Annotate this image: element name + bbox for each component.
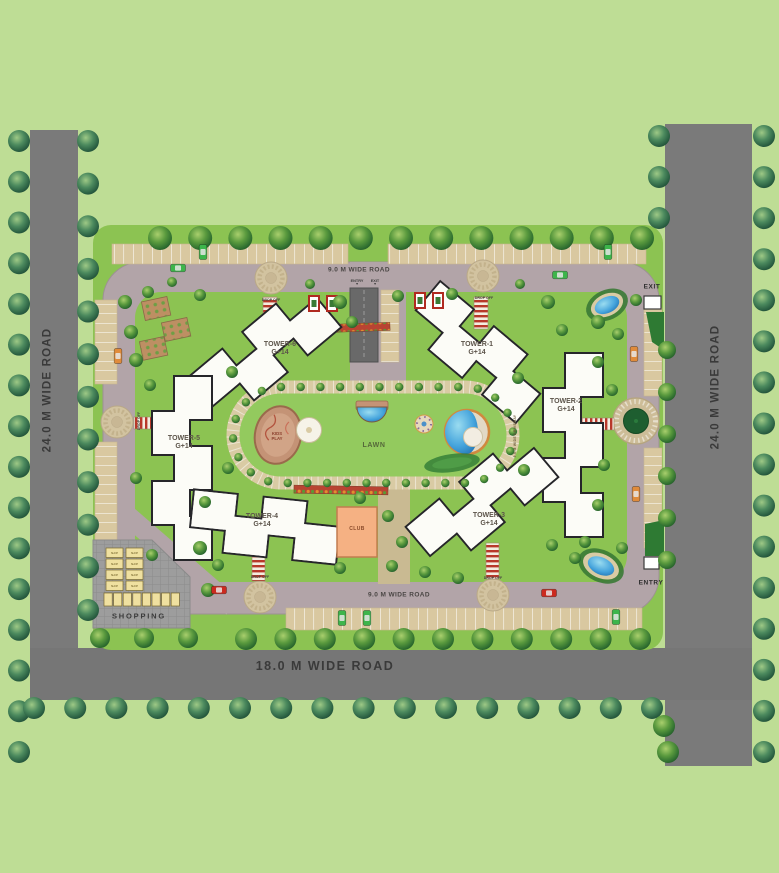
driveway-label: 9.0 M WIDE DRIVEWAY xyxy=(514,415,518,458)
tree-icon xyxy=(517,697,539,719)
tree-icon xyxy=(226,366,238,378)
inner-top-road-label: 9.0 M WIDE ROAD xyxy=(328,266,390,273)
tree-icon xyxy=(753,289,775,311)
basement-entry-label: ENTRY ▼ xyxy=(351,279,364,287)
drop-off-circle xyxy=(255,262,287,294)
tower-1-floors: G+14 xyxy=(461,349,493,357)
bottom-road xyxy=(30,648,752,700)
tree-icon xyxy=(393,628,415,650)
tree-icon xyxy=(8,537,30,559)
tree-icon xyxy=(303,479,311,487)
kids-play-label: KIDS PLAY xyxy=(267,432,287,442)
drop-off-circle xyxy=(477,579,509,611)
tree-icon xyxy=(193,541,207,555)
tree-icon xyxy=(305,279,315,289)
tree-icon xyxy=(309,226,333,250)
tree-icon xyxy=(129,353,143,367)
tree-icon xyxy=(64,697,86,719)
club-label: CLUB xyxy=(349,527,365,533)
tree-icon xyxy=(323,479,331,487)
tree-icon xyxy=(394,697,416,719)
tree-icon xyxy=(512,372,524,384)
tree-icon xyxy=(753,330,775,352)
tree-icon xyxy=(23,697,45,719)
tree-icon xyxy=(134,628,154,648)
tree-icon xyxy=(753,207,775,229)
tree-icon xyxy=(8,130,30,152)
tree-icon xyxy=(434,383,442,391)
tree-icon xyxy=(386,560,398,572)
tree-icon xyxy=(559,697,581,719)
tree-icon xyxy=(242,398,250,406)
tree-icon xyxy=(648,125,670,147)
swimming-pool xyxy=(445,410,489,454)
tower-6-floors: G+14 xyxy=(264,349,296,357)
tree-icon xyxy=(77,428,99,450)
tree-icon xyxy=(452,572,464,584)
tree-icon xyxy=(496,464,504,472)
tree-icon xyxy=(77,215,99,237)
tower-5-label: TOWER-5 G+14 xyxy=(168,435,200,451)
drop-off-label: DROP OFF xyxy=(475,296,494,300)
tree-icon xyxy=(346,316,358,328)
car-icon xyxy=(114,349,122,364)
gazebo xyxy=(297,418,322,443)
tree-icon xyxy=(653,715,675,737)
shop-unit xyxy=(133,593,141,606)
car-icon xyxy=(199,245,207,260)
tree-icon xyxy=(592,356,604,368)
tree-icon xyxy=(630,226,654,250)
exit-barrier xyxy=(644,296,661,309)
tree-icon xyxy=(491,393,499,401)
tree-icon xyxy=(77,130,99,152)
tree-icon xyxy=(8,293,30,315)
tree-icon xyxy=(454,383,462,391)
tree-icon xyxy=(419,566,431,578)
tree-icon xyxy=(228,226,252,250)
car-icon xyxy=(212,586,227,594)
tree-icon xyxy=(147,697,169,719)
tree-icon xyxy=(354,492,366,504)
basement-exit-label: EXIT ▼ xyxy=(371,279,379,287)
tree-icon xyxy=(511,628,533,650)
tree-icon xyxy=(124,325,138,339)
roundabout xyxy=(613,398,659,444)
entry-barrier xyxy=(644,557,659,569)
tree-icon xyxy=(395,383,403,391)
tree-icon xyxy=(148,226,172,250)
tree-icon xyxy=(90,628,110,648)
tower-1-name: TOWER-1 xyxy=(461,341,493,349)
tree-icon xyxy=(629,628,651,650)
tree-icon xyxy=(474,385,482,393)
tree-icon xyxy=(234,453,242,461)
drop-off-label: DROP OFF xyxy=(137,412,141,431)
lawn-label: LAWN xyxy=(362,442,385,450)
tower-4-floors: G+14 xyxy=(246,521,278,529)
tree-icon xyxy=(8,211,30,233)
tree-icon xyxy=(753,659,775,681)
tree-icon xyxy=(658,551,676,569)
tree-icon xyxy=(130,472,142,484)
tree-icon xyxy=(77,258,99,280)
tree-icon xyxy=(658,509,676,527)
master-plan: SHOPSHOPSHOPSHOPSHOPSHOPSHOPSHOP xyxy=(0,0,779,873)
shop-unit xyxy=(171,593,179,606)
tower-2-label: TOWER-2 G+14 xyxy=(550,398,582,414)
tree-icon xyxy=(546,539,558,551)
tower-6-label: TOWER-6 G+14 xyxy=(264,341,296,357)
tree-icon xyxy=(284,479,292,487)
tree-icon xyxy=(606,384,618,396)
tree-icon xyxy=(630,294,642,306)
walkway-tower-1 xyxy=(474,297,488,329)
left-road-label: 24.0 M WIDE ROAD xyxy=(41,328,54,453)
tree-icon xyxy=(432,628,454,650)
car-icon xyxy=(630,347,638,362)
walkway-tower-3 xyxy=(486,543,499,579)
tree-icon xyxy=(469,226,493,250)
shop-unit-label: SHOP xyxy=(111,573,119,577)
tree-icon xyxy=(334,562,346,574)
tree-icon xyxy=(569,552,581,564)
tree-icon xyxy=(274,628,296,650)
tree-icon xyxy=(316,383,324,391)
entry-label: ENTRY xyxy=(639,579,664,586)
tree-icon xyxy=(476,697,498,719)
tree-icon xyxy=(753,577,775,599)
shop-unit-label: SHOP xyxy=(111,584,119,588)
tree-icon xyxy=(77,599,99,621)
tower-3-floors: G+14 xyxy=(473,520,505,528)
tree-icon xyxy=(658,425,676,443)
car-icon xyxy=(338,611,346,626)
tree-icon xyxy=(269,226,293,250)
tree-icon xyxy=(188,697,210,719)
tree-icon xyxy=(105,697,127,719)
tower-4-label: TOWER-4 G+14 xyxy=(246,513,278,529)
tree-icon xyxy=(648,207,670,229)
tree-icon xyxy=(336,383,344,391)
tree-icon xyxy=(8,374,30,396)
tree-icon xyxy=(382,510,394,522)
shop-unit xyxy=(152,593,160,606)
inner-bottom-road-label: 9.0 M WIDE ROAD xyxy=(368,591,430,598)
right-road-label: 24.0 M WIDE ROAD xyxy=(709,325,722,450)
shop-unit-label: SHOP xyxy=(131,562,139,566)
tree-icon xyxy=(277,383,285,391)
tree-icon xyxy=(592,499,604,511)
tree-icon xyxy=(461,479,469,487)
tree-icon xyxy=(389,226,413,250)
shop-unit xyxy=(104,593,112,606)
tree-icon xyxy=(77,556,99,578)
tree-icon xyxy=(258,387,266,395)
tree-icon xyxy=(8,660,30,682)
tree-icon xyxy=(199,496,211,508)
tree-icon xyxy=(77,301,99,323)
shop-unit-label: SHOP xyxy=(131,573,139,577)
car-icon xyxy=(612,610,620,625)
tree-icon xyxy=(229,697,251,719)
tree-icon xyxy=(77,514,99,536)
tree-icon xyxy=(612,328,624,340)
tree-icon xyxy=(167,277,177,287)
tower-3-label: TOWER-3 G+14 xyxy=(473,512,505,528)
tree-icon xyxy=(77,343,99,365)
tree-icon xyxy=(333,295,347,309)
tower-4-name: TOWER-4 xyxy=(246,513,278,521)
tree-icon xyxy=(600,697,622,719)
tree-icon xyxy=(77,386,99,408)
tree-icon xyxy=(753,536,775,558)
tree-icon xyxy=(375,383,383,391)
tree-icon xyxy=(550,628,572,650)
tree-icon xyxy=(222,462,234,474)
tree-icon xyxy=(518,464,530,476)
drop-off-label: DROP OFF xyxy=(262,298,281,302)
tree-icon xyxy=(480,475,488,483)
tree-icon xyxy=(515,279,525,289)
tree-icon xyxy=(8,334,30,356)
down-arrow-icon: ▼ xyxy=(373,283,376,286)
tree-icon xyxy=(753,412,775,434)
tree-icon xyxy=(142,286,154,298)
tree-icon xyxy=(146,549,158,561)
tree-icon xyxy=(270,697,292,719)
tree-icon xyxy=(753,495,775,517)
tree-icon xyxy=(8,456,30,478)
tree-icon xyxy=(510,226,534,250)
tree-icon xyxy=(362,479,370,487)
tree-icon xyxy=(658,383,676,401)
shop-unit-label: SHOP xyxy=(131,551,139,555)
tree-icon xyxy=(8,171,30,193)
tree-icon xyxy=(235,628,257,650)
down-arrow-icon: ▼ xyxy=(355,283,358,286)
tree-icon xyxy=(658,467,676,485)
shop-unit-label: SHOP xyxy=(111,551,119,555)
tree-icon xyxy=(8,252,30,274)
tree-icon xyxy=(311,697,333,719)
tree-icon xyxy=(353,697,375,719)
site-plan-graphic: SHOPSHOPSHOPSHOPSHOPSHOPSHOPSHOP xyxy=(0,0,779,873)
tree-icon xyxy=(415,383,423,391)
tree-icon xyxy=(598,459,610,471)
tree-icon xyxy=(77,173,99,195)
tree-icon xyxy=(658,341,676,359)
bottom-road-label: 18.0 M WIDE ROAD xyxy=(256,659,395,673)
tree-icon xyxy=(314,628,336,650)
tree-icon xyxy=(648,166,670,188)
parking-row-top-left xyxy=(112,244,348,264)
tree-icon xyxy=(550,226,574,250)
tree-icon xyxy=(343,479,351,487)
tree-icon xyxy=(753,618,775,640)
tree-icon xyxy=(429,226,453,250)
tree-icon xyxy=(753,248,775,270)
tree-icon xyxy=(229,434,237,442)
tree-icon xyxy=(8,578,30,600)
tree-icon xyxy=(556,324,568,336)
tower-5-floors: G+14 xyxy=(168,443,200,451)
tree-icon xyxy=(8,741,30,763)
tower-2-floors: G+14 xyxy=(550,406,582,414)
shop-unit-label: SHOP xyxy=(131,584,139,588)
tower-3-name: TOWER-3 xyxy=(473,512,505,520)
exit-label: EXIT xyxy=(644,283,661,290)
shop-unit xyxy=(123,593,131,606)
shop-unit-label: SHOP xyxy=(111,562,119,566)
tree-icon xyxy=(8,415,30,437)
drop-off-label: DROP OFF xyxy=(484,576,503,580)
tree-icon xyxy=(641,697,663,719)
car-icon xyxy=(553,271,568,279)
shop-unit xyxy=(114,593,122,606)
tree-icon xyxy=(353,628,375,650)
tree-icon xyxy=(435,697,457,719)
shopping-label: SHOPPING xyxy=(112,613,166,622)
tree-icon xyxy=(232,415,240,423)
tree-icon xyxy=(382,479,390,487)
tree-icon xyxy=(616,542,628,554)
drop-off-circle xyxy=(467,260,499,292)
tree-icon xyxy=(591,315,605,329)
tree-icon xyxy=(77,471,99,493)
tower-5-name: TOWER-5 xyxy=(168,435,200,443)
mandala-court xyxy=(415,415,433,433)
tree-icon xyxy=(753,166,775,188)
car-icon xyxy=(604,245,612,260)
drop-off-circle xyxy=(101,406,133,438)
tree-icon xyxy=(392,290,404,302)
tree-icon xyxy=(471,628,493,650)
tree-icon xyxy=(753,454,775,476)
tree-icon xyxy=(194,289,206,301)
tree-icon xyxy=(657,741,679,763)
tree-icon xyxy=(118,295,132,309)
tree-icon xyxy=(446,288,458,300)
tree-icon xyxy=(753,125,775,147)
tree-icon xyxy=(402,479,410,487)
tree-icon xyxy=(541,295,555,309)
tree-icon xyxy=(579,536,591,548)
tree-icon xyxy=(349,226,373,250)
car-icon xyxy=(632,487,640,502)
tree-icon xyxy=(356,383,364,391)
tree-icon xyxy=(753,741,775,763)
car-icon xyxy=(363,611,371,626)
tree-icon xyxy=(753,700,775,722)
shop-unit xyxy=(142,593,150,606)
tower-6-name: TOWER-6 xyxy=(264,341,296,349)
tree-icon xyxy=(178,628,198,648)
tower-2-name: TOWER-2 xyxy=(550,398,582,406)
tree-icon xyxy=(753,371,775,393)
tree-icon xyxy=(421,479,429,487)
tree-icon xyxy=(8,619,30,641)
tree-icon xyxy=(247,468,255,476)
drop-off-circle xyxy=(244,581,276,613)
tree-icon xyxy=(503,409,511,417)
tree-icon xyxy=(296,383,304,391)
tower-1-label: TOWER-1 G+14 xyxy=(461,341,493,357)
tree-icon xyxy=(396,536,408,548)
tree-icon xyxy=(8,497,30,519)
tree-icon xyxy=(212,559,224,571)
tree-icon xyxy=(144,379,156,391)
car-icon xyxy=(542,589,557,597)
shop-unit xyxy=(162,593,170,606)
tree-icon xyxy=(590,628,612,650)
tree-icon xyxy=(441,479,449,487)
drop-off-label: DROP OFF xyxy=(251,575,270,579)
car-icon xyxy=(171,264,186,272)
tree-icon xyxy=(264,477,272,485)
